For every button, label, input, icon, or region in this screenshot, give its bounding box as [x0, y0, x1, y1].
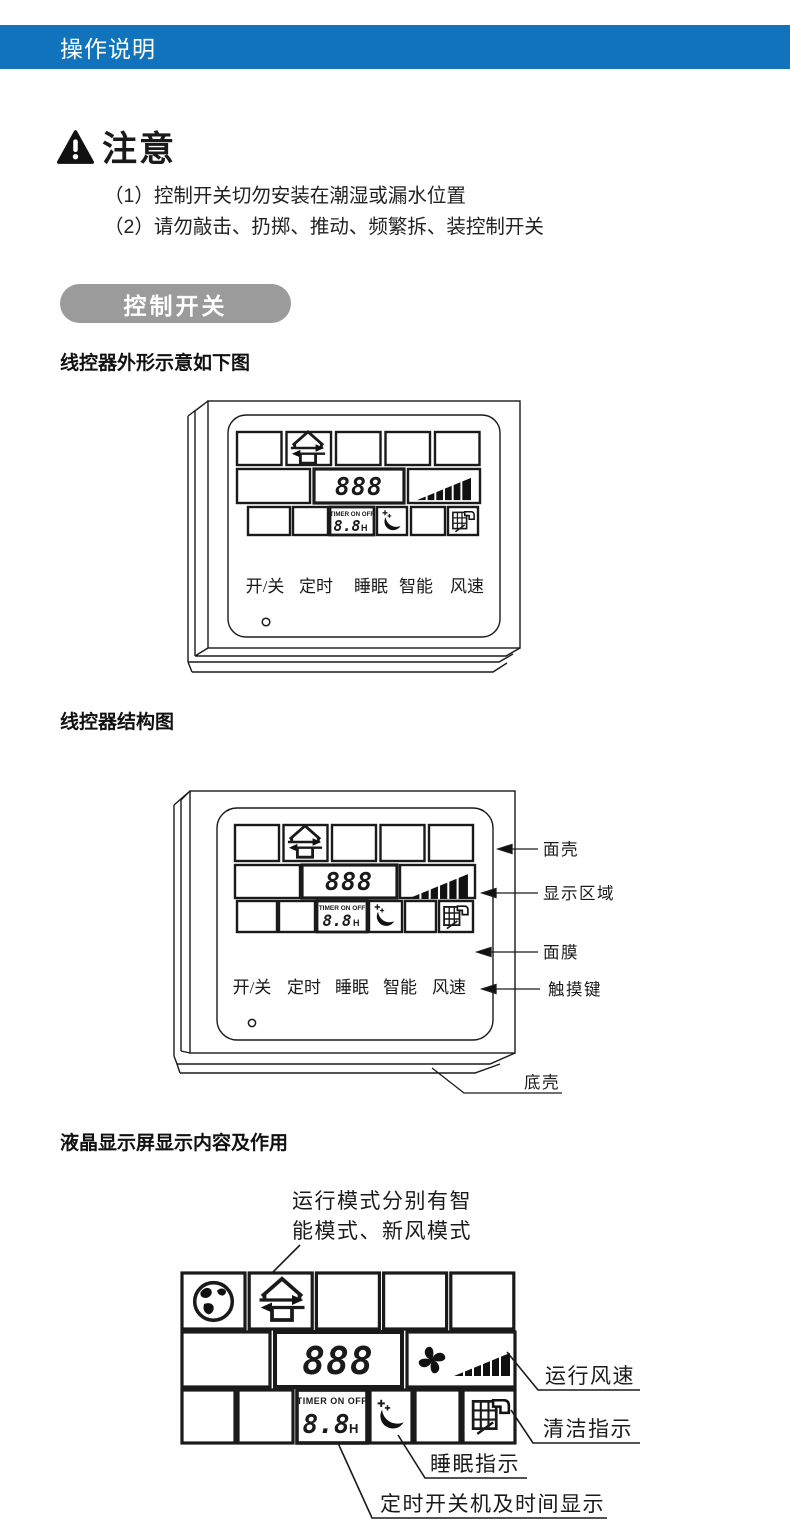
- annotation-fan-speed: 运行风速: [545, 1364, 635, 1388]
- key-timer: 定时: [287, 978, 321, 997]
- callout-bottom-shell: 底壳: [524, 1073, 560, 1092]
- section-pill-label: 控制开关: [124, 287, 228, 321]
- main-digits: 888: [302, 1339, 374, 1383]
- annotation-sleep: 睡眠指示: [430, 1452, 520, 1476]
- main-digits: 888: [335, 472, 383, 501]
- fresh-air-house-icon: [260, 1279, 305, 1320]
- moon-sleep-icon: [378, 1400, 404, 1429]
- timer-unit: H: [361, 523, 368, 533]
- heading-lcd: 液晶显示屏显示内容及作用: [60, 1128, 288, 1155]
- callout-membrane: 面膜: [543, 943, 579, 962]
- heading-structure: 线控器结构图: [60, 707, 174, 734]
- main-digits: 888: [325, 867, 373, 896]
- fan-blade-icon: [419, 1347, 446, 1374]
- warning-icon: [57, 130, 94, 164]
- key-sleep: 睡眠: [354, 577, 388, 596]
- callout-labels: 面壳 显示区域 面膜 触摸键 底壳: [524, 840, 615, 1092]
- notice-header: 注意: [57, 121, 176, 172]
- callout-display-area: 显示区域: [543, 884, 615, 903]
- controller-outline-diagram: 888 TIMER ON OFF 8.8 H 开/关 定时 睡眠 智能 风速: [175, 385, 525, 690]
- globe-smart-mode-icon: [195, 1283, 233, 1321]
- timer-digits: 8.8: [333, 517, 360, 535]
- manual-page: 操作说明 注意 （1）控制开关切勿安装在潮湿或漏水位置 （2）请勿敲击、扔掷、推…: [0, 0, 790, 1536]
- mode-annotation-line1: 运行模式分别有智: [292, 1189, 472, 1213]
- mode-annotation: 运行模式分别有智 能模式、新风模式: [292, 1189, 472, 1243]
- key-power: 开/关: [246, 577, 285, 596]
- section-pill-control-switch: 控制开关: [60, 284, 291, 323]
- mode-annotation-line2: 能模式、新风模式: [292, 1219, 472, 1243]
- controller-structure-diagram: 888 TIMER ON OFF 8.8 H 开/关 定时 睡眠 智能 风速 面…: [150, 775, 650, 1105]
- lcd-annotated-diagram: 运行模式分别有智 能模式、新风模式 888 TIMER ON OFF 8.8 H: [150, 1180, 650, 1530]
- key-smart: 智能: [399, 577, 433, 596]
- key-fanspeed: 风速: [450, 577, 484, 596]
- timer-label: TIMER ON OFF: [297, 1396, 368, 1406]
- section-header-bar: 操作说明: [0, 25, 790, 69]
- key-smart: 智能: [383, 978, 417, 997]
- key-fanspeed: 风速: [432, 978, 466, 997]
- timer-unit: H: [353, 918, 360, 928]
- key-sleep: 睡眠: [335, 978, 369, 997]
- callout-touch-keys: 触摸键: [548, 980, 602, 999]
- annotation-clean: 清洁指示: [543, 1417, 633, 1441]
- heading-outline: 线控器外形示意如下图: [60, 348, 250, 375]
- key-timer: 定时: [299, 577, 333, 596]
- timer-digits: 8.8: [303, 1410, 350, 1440]
- timer-digits: 8.8: [323, 911, 352, 930]
- clean-indicator-icon: [473, 1400, 509, 1434]
- notice-item-1: （1）控制开关切勿安装在潮湿或漏水位置: [104, 181, 544, 212]
- notice-items: （1）控制开关切勿安装在潮湿或漏水位置 （2）请勿敲击、扔掷、推动、频繁拆、装控…: [104, 181, 544, 243]
- page-title: 操作说明: [60, 30, 156, 64]
- notice-item-2: （2）请勿敲击、扔掷、推动、频繁拆、装控制开关: [104, 212, 544, 243]
- key-power: 开/关: [233, 978, 272, 997]
- annotation-timer: 定时开关机及时间显示: [380, 1492, 605, 1516]
- notice-title: 注意: [102, 121, 176, 172]
- timer-unit: H: [349, 1421, 358, 1436]
- fan-speed-icon: [454, 1353, 510, 1377]
- callout-face-shell: 面壳: [543, 840, 579, 859]
